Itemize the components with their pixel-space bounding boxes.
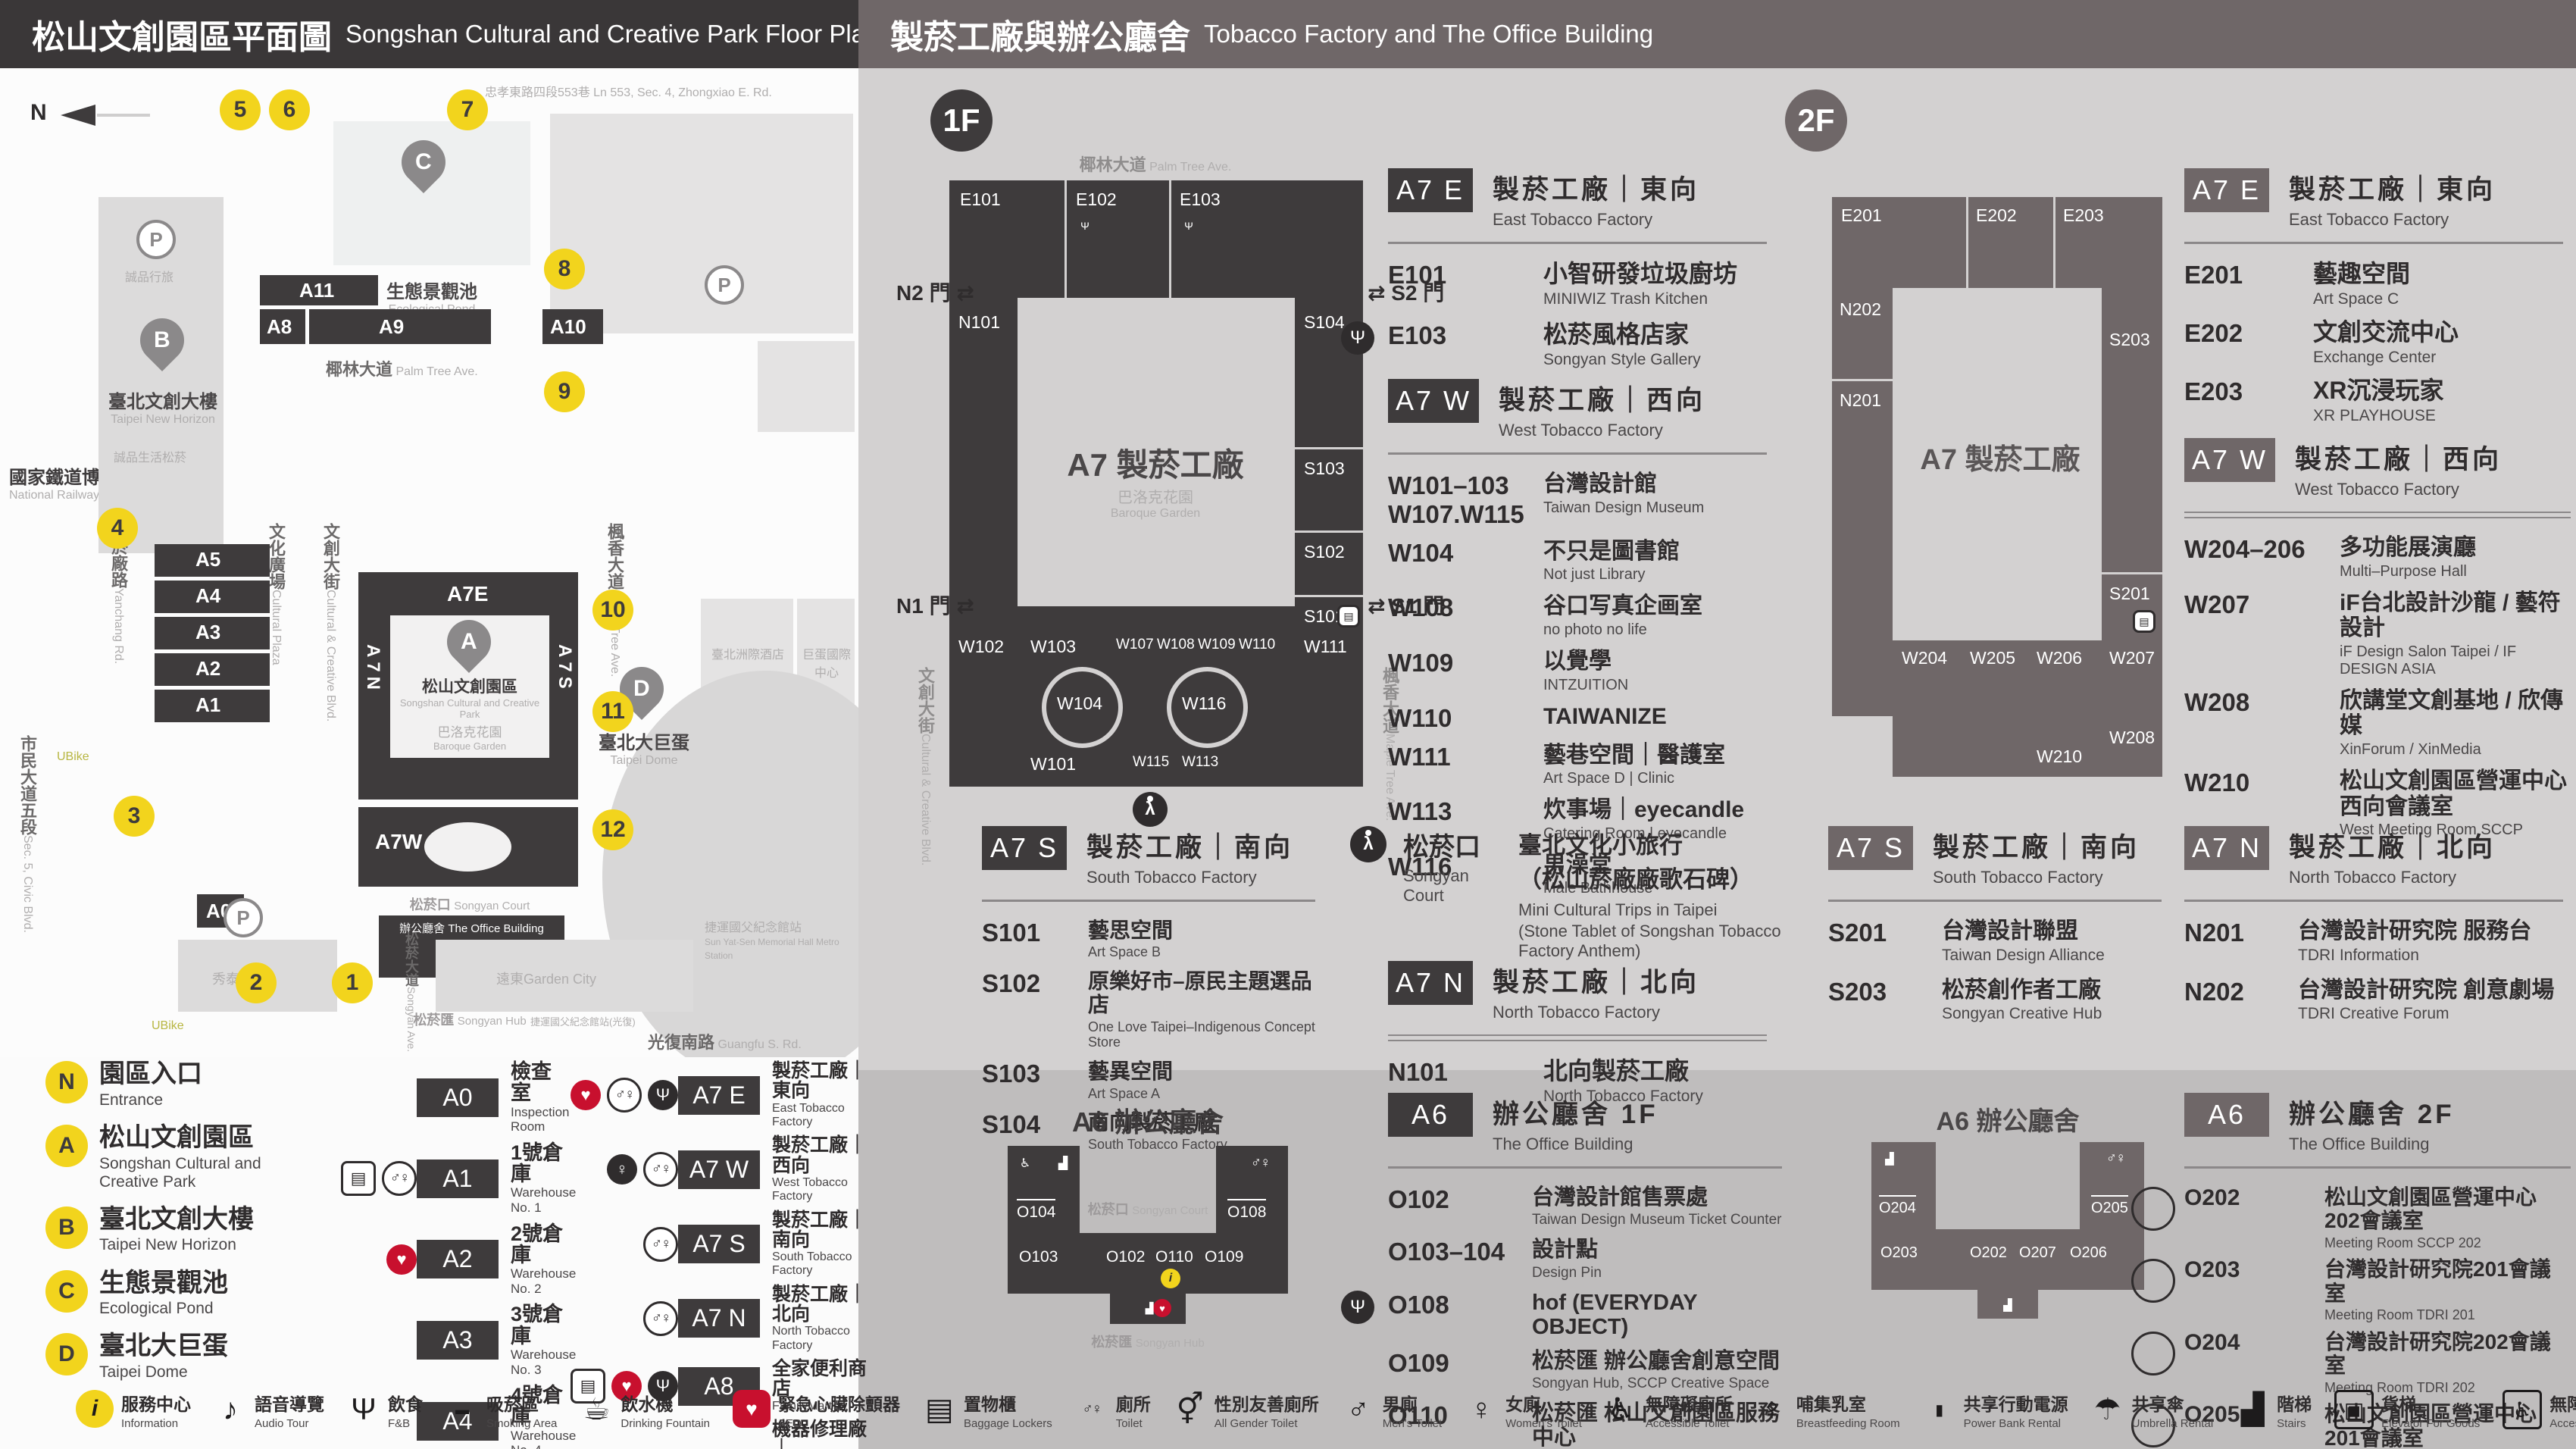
legend-places: N 園區入口 Entrance A 松山文創園區 Songshan Cultur…: [34, 1061, 284, 1397]
accessible-toilet-icon: [1605, 1390, 1638, 1429]
entrance-marker-10: 10: [592, 590, 633, 631]
park-title-en: Songshan Cultural and Creative Park Floo…: [345, 20, 879, 49]
facility-item: 無障礙廁所 Accessible Toilet: [1605, 1390, 1733, 1430]
f2-a7e-section: A7 E 製菸工廠｜東向East Tobacco Factory E201 藝趣…: [2184, 168, 2563, 436]
directory-row: W204–206 多功能展演廳Multi–Purpose Hall: [2184, 535, 2571, 581]
room-code: E202: [2184, 319, 2313, 367]
facility-item: 吸菸區 Smoking Area: [445, 1390, 557, 1430]
building-badge: A0: [417, 1078, 499, 1117]
directory-row: E202 文創交流中心Exchange Center: [2184, 319, 2563, 367]
parking-icon: P: [224, 898, 263, 937]
toilet-icon: [1250, 1153, 1270, 1173]
f2-center-label: A7 製菸工廠: [1894, 436, 2106, 477]
a7w-badge: A7 W: [1388, 379, 1479, 423]
baggage-lockers-icon: [341, 1161, 376, 1196]
building-badge: A7 N: [678, 1299, 760, 1338]
stairs-icon: [2236, 1390, 2269, 1429]
building-name-zh: 製菸工廠｜西向: [772, 1135, 868, 1175]
eslite-life-label: 誠品生活松菸: [114, 447, 186, 465]
f2-a7s-section: A7 S 製菸工廠｜南向South Tobacco Factory S201 台…: [1828, 826, 2162, 1036]
entrance-marker-7: 7: [447, 89, 488, 130]
directory-row: E101 小智研發垃圾廚坊MINIWIZ Trash Kitchen: [1388, 261, 1767, 308]
legend-building-row: A1 1號倉庫 Warehouse No. 1: [303, 1142, 553, 1216]
entrance-marker-6: 6: [269, 89, 310, 130]
room-code: W207: [2184, 590, 2340, 678]
a7s-badge: A7 S: [982, 826, 1067, 870]
place-name-en: Ecological Pond: [99, 1300, 228, 1318]
f2-a7n-section: A7 N 製菸工廠｜北向North Tobacco Factory N201 台…: [2184, 826, 2563, 1036]
mini-trips-icon: [1350, 826, 1386, 862]
facility-item: 服務中心 Information: [76, 1390, 191, 1430]
dome-intl-label: 巨蛋國際中心: [800, 644, 853, 681]
aed-icon: [733, 1390, 771, 1428]
hotel-label: 臺北洲際酒店: [706, 644, 789, 662]
eslite-hotel-label: 誠品行旅: [125, 267, 174, 285]
entrance-marker-4: 4: [97, 508, 138, 549]
legend-building-row: A3 3號倉庫 Warehouse No. 3: [303, 1303, 553, 1377]
room-code: O202: [2184, 1185, 2324, 1250]
room-code: O108: [1388, 1291, 1532, 1340]
directory-row: W101–103W107.W115 台灣設計館Taiwan Design Mus…: [1388, 471, 1767, 529]
directory-row: O102 台灣設計館售票處Taiwan Design Museum Ticket…: [1388, 1185, 1782, 1228]
songyan-court-note: 松菸口 Songyan Court 臺北文化小旅行 （松山菸廠廠歌石碑） Min…: [1350, 826, 1797, 961]
legend-building-row: A2 2號倉庫 Warehouse No. 2: [303, 1223, 553, 1297]
facility-item: 女廁 Women's Toilet: [1465, 1390, 1582, 1430]
facility-item: 飲水機 Drinking Fountain: [580, 1390, 710, 1430]
directory-row: O203 台灣設計研究院201會議室Meeting Room TDRI 201: [2184, 1257, 2571, 1322]
room-code: E101: [1388, 261, 1543, 308]
place-name-en: Entrance: [99, 1091, 202, 1109]
directory-row: O109 松菸匯 辦公廳舍創意空間Songyan Hub, SCCP Creat…: [1388, 1349, 1782, 1392]
facility-item: 廁所 Toilet: [1075, 1390, 1151, 1430]
header-right: 製菸工廠與辦公廳舍 Tobacco Factory and The Office…: [858, 0, 2576, 68]
building-badge: A7 E: [678, 1076, 760, 1115]
room-code: S101: [982, 919, 1088, 960]
office1f-map: A6 辦公廳舍 松菸口 Songyan Court O104 O108 O103…: [985, 1093, 1311, 1366]
taipei-dome-label: 臺北大巨蛋 Taipei Dome: [561, 728, 727, 768]
compass-label: N: [30, 100, 47, 126]
floor2-label: 2F: [1785, 89, 1847, 152]
building-name-zh: 製菸工廠｜東向: [772, 1061, 868, 1101]
place-marker: D: [45, 1333, 88, 1375]
room-code: O103–104: [1388, 1238, 1532, 1281]
building-badge: A3: [417, 1321, 499, 1360]
aed-icon: [571, 1080, 601, 1110]
baggage-lockers-icon: [923, 1390, 956, 1429]
place-name-zh: 生態景觀池: [99, 1270, 228, 1297]
directory-row: O202 松山文創園區營運中心202會議室Meeting Room SCCP 2…: [2184, 1185, 2571, 1250]
garden-city-label: 遠東Garden City: [496, 969, 596, 988]
a7n-badge: A7 N: [2184, 826, 2269, 870]
stairs-icon: [1140, 1299, 1158, 1317]
fnb-icon: [1341, 1291, 1374, 1324]
audio-tour-icon: [214, 1390, 247, 1429]
entrance-marker-11: 11: [592, 691, 633, 732]
floor1-label: 1F: [930, 89, 993, 152]
room-code: E203: [2184, 377, 2313, 425]
ubike-icon: UBike: [57, 750, 89, 764]
drinking-fountain-icon: [580, 1390, 613, 1429]
legend-place-row: C 生態景觀池 Ecological Pond: [34, 1270, 284, 1319]
floor3-badge: [2131, 1187, 2175, 1231]
parking-icon: P: [136, 220, 176, 259]
legend-building-row: A7 W 製菸工廠｜西向 West Tobacco Factory: [564, 1135, 868, 1203]
ubike-icon: UBike: [152, 1019, 184, 1033]
directory-row: E201 藝趣空間Art Space C: [2184, 261, 2563, 308]
room-code: N201: [2184, 919, 2298, 965]
fnb-icon: [1341, 321, 1374, 355]
f2-north-band: [1832, 288, 1893, 716]
power-bank-icon: [1923, 1390, 1956, 1429]
room-code: W104: [1388, 539, 1543, 584]
a7e-badge: A7 E: [2184, 168, 2269, 212]
compass-line: [97, 114, 150, 117]
place-name-zh: 松山文創園區: [99, 1125, 274, 1152]
a7e-badge: A7 E: [1388, 168, 1473, 212]
aed-icon: [386, 1244, 417, 1275]
place-marker: N: [45, 1061, 88, 1103]
building-name-zh: 製菸工廠｜北向: [772, 1285, 868, 1325]
facility-item: 置物櫃 Baggage Lockers: [923, 1390, 1052, 1430]
legend: N 園區入口 Entrance A 松山文創園區 Songshan Cultur…: [34, 1061, 860, 1387]
gate-n1: N1 門 ⇄: [896, 590, 974, 620]
a7w-badge: A7 W: [2184, 438, 2275, 482]
directory-row: S203 松菸創作者工廠Songyan Creative Hub: [1828, 978, 2162, 1024]
directory-row: W108 谷口写真企画室no photo no life: [1388, 593, 1767, 639]
stairs-icon: [1880, 1150, 1899, 1168]
floor2-map: E201 E202 E203 N202 N201 S203 S201 W204 …: [1826, 155, 2168, 796]
room-code: W208: [2184, 688, 2340, 759]
entrance-marker-12: 12: [592, 809, 633, 850]
fnb-icon: [648, 1080, 678, 1110]
guangfu-rd-label: 光復南路 Guangfu S. Rd.: [648, 1029, 802, 1053]
room-code: O204: [2184, 1330, 2324, 1395]
lane553-label: 忠孝東路四段553巷 Ln 553, Sec. 4, Zhongxiao E. …: [485, 82, 772, 100]
header-left: 松山文創園區平面圖 Songshan Cultural and Creative…: [0, 0, 858, 68]
place-name-en: Songshan Cultural and Creative Park: [99, 1155, 274, 1191]
room-code: W109: [1388, 649, 1543, 694]
directory-row: S101 藝思空間Art Space B: [982, 919, 1315, 960]
f1-street-left: 文創大街Cultural & Creative Blvd.: [913, 667, 937, 865]
legend-building-row: A7 E 製菸工廠｜東向 East Tobacco Factory: [564, 1061, 868, 1129]
building-badge: A1: [417, 1160, 499, 1198]
songyan-court-map-label: 松菸口 Songyan Court: [379, 894, 561, 914]
directory-row: S102 原樂好市–原民主題選品店One Love Taipei–Indigen…: [982, 969, 1315, 1050]
entrance-marker-5: 5: [220, 89, 261, 130]
building-name-en: North Tobacco Factory: [772, 1325, 868, 1353]
facility-item: 共享傘 Umbrella Rental: [2091, 1390, 2214, 1430]
office1f-court-label: 松菸口 Songyan Court: [1080, 1199, 1216, 1219]
place-name-zh: 臺北大巨蛋: [99, 1333, 228, 1360]
room-code: S102: [982, 969, 1088, 1050]
place-marker: C: [45, 1270, 88, 1313]
office1f-map-title: A6 辦公廳舍: [985, 1100, 1311, 1140]
facility-item: 緊急心臟除顫器 AED: [733, 1390, 900, 1430]
smoking-area-icon: [445, 1390, 479, 1429]
palm-tree-ave-label: 椰林大道 Palm Tree Ave.: [326, 356, 478, 380]
directory-row: W111 藝巷空間｜醫護室Art Space D | Clinic: [1388, 743, 1767, 788]
room-code: W108: [1388, 593, 1543, 639]
songyan-ave-label: 松菸大道Songyan Ave.: [402, 932, 421, 1052]
room-code: E201: [2184, 261, 2313, 308]
songyan-court-icon: [1133, 792, 1168, 827]
building-name-zh: 檢查室: [511, 1061, 570, 1104]
legend-place-row: A 松山文創園區 Songshan Cultural and Creative …: [34, 1125, 284, 1191]
room-code: E103: [1388, 321, 1543, 369]
facility-item: 男廁 Men's Toilet: [1342, 1390, 1442, 1430]
park-name-label: 松山文創園區 Songshan Cultural and Creative Pa…: [390, 674, 549, 720]
office2f-map-title: A6 辦公廳舍: [1856, 1100, 2159, 1138]
floor1-map: 椰林大道 Palm Tree Ave. E101 E102 E103 N101 …: [943, 152, 1369, 807]
building-badge: A2: [417, 1240, 499, 1278]
directory-row: S201 台灣設計聯盟Taiwan Design Alliance: [1828, 919, 2162, 965]
fnb-icon: [1180, 217, 1198, 235]
directory-row: O103–104 設計點Design Pin: [1388, 1238, 1782, 1281]
directory-row: E103 松菸風格店家Songyan Style Gallery: [1388, 321, 1767, 369]
parking-icon: P: [705, 265, 744, 305]
umbrella-icon: [2091, 1390, 2124, 1429]
park-map: N 國家鐵道博物館 National Railway Museum C 生態景觀…: [0, 68, 858, 1057]
directory-row: W109 以覺學INTZUITION: [1388, 649, 1767, 694]
entrance-marker-8: 8: [544, 249, 585, 289]
entrance-marker-1: 1: [332, 962, 373, 1003]
directory-row: E203 XR沉浸玩家XR PLAYHOUSE: [2184, 377, 2563, 425]
legend-place-row: D 臺北大巨蛋 Taipei Dome: [34, 1333, 284, 1382]
information-icon: [76, 1390, 114, 1428]
legend-place-row: B 臺北文創大樓 Taipei New Horizon: [34, 1206, 284, 1255]
building-badge: A7 S: [678, 1225, 760, 1263]
entrance-marker-3: 3: [114, 796, 155, 837]
floor3-badge: [2131, 1332, 2175, 1375]
directory-row: O108 hof (EVERYDAY OBJECT): [1388, 1291, 1782, 1340]
facility-item: 性別友善廁所 All Gender Toilet: [1174, 1390, 1319, 1430]
directory-row: O204 台灣設計研究院202會議室Meeting Room TDRI 202: [2184, 1330, 2571, 1395]
toilet-icon: [607, 1078, 642, 1113]
toilet-icon: [382, 1161, 417, 1196]
room-code: S201: [1828, 919, 1942, 965]
a7s-badge: A7 S: [1828, 826, 1913, 870]
facility-item: 階梯 Stairs: [2236, 1390, 2312, 1430]
factory-title-zh: 製菸工廠與辦公廳舍: [890, 10, 1190, 58]
stairs-icon: [1999, 1296, 2017, 1314]
facility-item: 語音導覽 Audio Tour: [214, 1390, 324, 1430]
toilet-icon: [1075, 1390, 1108, 1429]
a7n-badge: A7 N: [1388, 961, 1473, 1005]
gate-n2: N2 門 ⇄: [896, 277, 974, 307]
building-badge: A7 W: [678, 1150, 760, 1189]
goods-elevator-icon: [2334, 1390, 2374, 1429]
legend-place-row: N 園區入口 Entrance: [34, 1061, 284, 1109]
f2-a7w-section: A7 W 製菸工廠｜西向West Tobacco Factory W204–20…: [2184, 438, 2571, 849]
stairs-icon: [1053, 1153, 1073, 1173]
a6-badge: A6: [1388, 1093, 1473, 1137]
facility-item: 共享行動電源 Power Bank Rental: [1923, 1390, 2068, 1430]
new-horizon-label: 臺北文創大樓 Taipei New Horizon: [91, 387, 235, 427]
building-name-en: Inspection Room: [511, 1105, 570, 1134]
room-code: W110: [1388, 704, 1543, 733]
f1-east-band: [949, 180, 1363, 298]
place-name-en: Taipei New Horizon: [99, 1236, 254, 1254]
room-code: S203: [1828, 978, 1942, 1024]
entrance-marker-9: 9: [544, 371, 585, 412]
directory-row: N202 台灣設計研究院 創意劇場TDRI Creative Forum: [2184, 978, 2563, 1024]
building-name-en: South Tobacco Factory: [772, 1250, 868, 1278]
facility-legend-strip: 服務中心 Information 語音導覽 Audio Tour 飲食: [76, 1390, 2576, 1444]
city-block-ne: [550, 114, 853, 333]
floor-plan-poster: 松山文創園區平面圖 Songshan Cultural and Creative…: [0, 0, 2576, 1449]
baggage-lockers-icon: [1337, 605, 1360, 627]
facility-item: 無障礙電梯 Accessible Elevator: [2503, 1390, 2576, 1430]
entrance-marker-2: 2: [236, 962, 277, 1003]
building-name-zh: 製菸工廠｜南向: [772, 1210, 868, 1250]
room-code: N202: [2184, 978, 2298, 1024]
all-gender-toilet-icon: [1174, 1390, 1207, 1429]
legend-building-row: A0 檢查室 Inspection Room: [303, 1061, 553, 1134]
cc-blvd-label: 文創大街Cultural & Creative Blvd.: [318, 523, 342, 721]
fnb-icon: [347, 1390, 380, 1429]
accessible-elevator-icon: [2503, 1390, 2542, 1429]
facility-item: 貨梯 Elevator For Goods: [2334, 1390, 2480, 1430]
directory-row: W110 TAIWANIZE: [1388, 704, 1767, 733]
breastfeeding-icon: [607, 1154, 637, 1185]
building-name-en: East Tobacco Factory: [772, 1102, 868, 1130]
place-marker: B: [45, 1206, 88, 1249]
legend-building-row: A7 S 製菸工廠｜南向 South Tobacco Factory: [564, 1210, 868, 1278]
room-code: W111: [1388, 743, 1543, 788]
place-name-en: Taipei Dome: [99, 1363, 228, 1382]
toilet-icon: [2106, 1150, 2124, 1168]
directory-row: N201 台灣設計研究院 服務台TDRI Information: [2184, 919, 2563, 965]
room-code: W101–103W107.W115: [1388, 471, 1543, 529]
room-code: O203: [2184, 1257, 2324, 1322]
office1f-hub-label: 松菸匯 Songyan Hub: [1072, 1332, 1224, 1351]
toilet-icon: [643, 1152, 678, 1187]
place-name-zh: 臺北文創大樓: [99, 1206, 254, 1234]
civic-blvd-label: 市民大道五段Sec. 5, Civic Blvd.: [15, 735, 39, 933]
a6-badge: A6: [2184, 1093, 2269, 1137]
womens-toilet-icon: [1465, 1390, 1498, 1429]
directory-row: W104 不只是圖書館Not just Library: [1388, 539, 1767, 584]
f1-a7e-section: A7 E 製菸工廠｜東向East Tobacco Factory E101 小智…: [1388, 168, 1767, 382]
directory-row: W208 欣講堂文創基地 / 欣傳媒XinForum / XinMedia: [2184, 688, 2571, 759]
legend-building-row: A7 N 製菸工廠｜北向 North Tobacco Factory: [564, 1285, 868, 1353]
breastfeeding-icon: [1755, 1390, 1789, 1429]
room-code: O102: [1388, 1185, 1532, 1228]
room-code: W204–206: [2184, 535, 2340, 581]
mens-toilet-icon: [1342, 1390, 1375, 1429]
baroque-garden-label: 巴洛克花園 Baroque Garden: [390, 721, 549, 752]
facility-item: 飲食 F&B: [347, 1390, 423, 1430]
compass-arrow-icon: [61, 105, 95, 126]
office2f-map: A6 辦公廳舍 O204 O205 O203 O202 O207 O206: [1856, 1093, 2159, 1343]
baggage-lockers-icon: [2133, 610, 2156, 633]
floor3-badge: [2131, 1259, 2175, 1303]
room-code: O109: [1388, 1349, 1532, 1392]
a7w-courtyard: [424, 822, 511, 872]
park-title-zh: 松山文創園區平面圖: [32, 10, 332, 58]
information-icon: [1161, 1269, 1180, 1288]
yanchang-rd-label: 菸廠路Yanchang Rd.: [106, 538, 130, 664]
place-marker: A: [45, 1125, 88, 1167]
directory-row: W207 iF台北設計沙龍 / 藝符設計iF Design Salon Taip…: [2184, 590, 2571, 678]
accessible-toilet-icon: [1015, 1153, 1035, 1173]
factory-title-en: Tobacco Factory and The Office Building: [1204, 20, 1653, 49]
toilet-icon: [643, 1227, 678, 1262]
bus-stop-label: 捷運國父紀念館站(光復): [530, 1014, 636, 1028]
place-name-zh: 園區入口: [99, 1061, 202, 1088]
f1-center-label: A7 製菸工廠: [1019, 440, 1292, 486]
toilet-icon: [643, 1301, 678, 1336]
palm-ave-street-label: 椰林大道 Palm Tree Ave.: [1042, 152, 1269, 176]
fnb-icon: [1076, 217, 1094, 235]
f1-north-band: [949, 298, 1018, 787]
building-name-en: West Tobacco Factory: [772, 1176, 868, 1204]
metro-station-label: 捷運國父紀念館站Sun Yat-Sen Memorial Hall Metro …: [705, 917, 849, 962]
facility-item: 哺集乳室 Breastfeeding Room: [1755, 1390, 1900, 1430]
f1-garden-label: 巴洛克花園 Baroque Garden: [1019, 485, 1292, 521]
city-block-e: [758, 341, 855, 432]
